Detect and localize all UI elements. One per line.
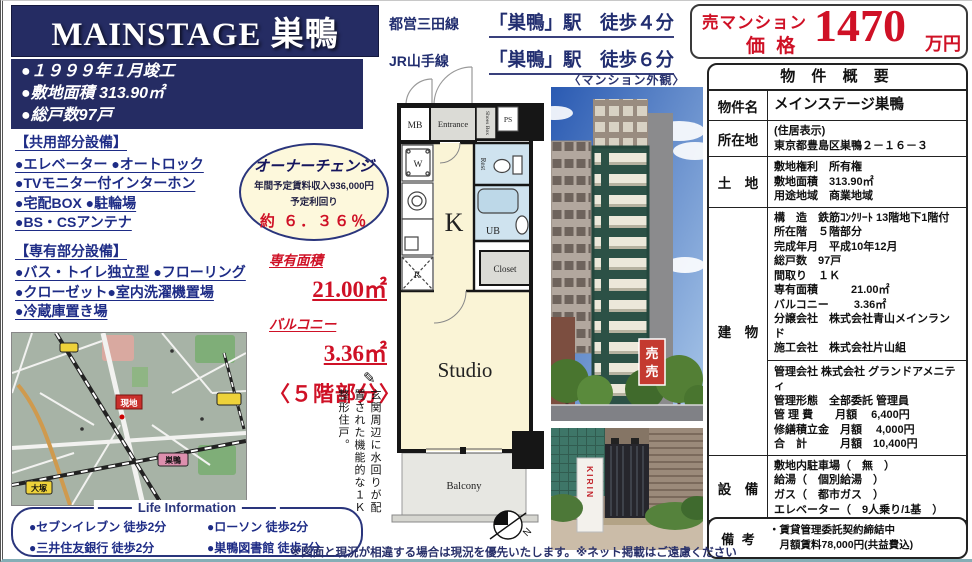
overview-line: 専有面積 21.00㎡ — [774, 283, 960, 298]
equipment-item: ●BS・CSアンテナ — [15, 213, 261, 233]
overview-row-label: 物件名 — [709, 91, 768, 120]
property-title-banner: MAINSTAGE 巣鴨 — [11, 5, 379, 57]
building-fact: ●１９９９年１月竣工 — [21, 61, 353, 83]
building-facts-box: ●１９９９年１月竣工●敷地面積 313.90㎡●総戸数97戸 — [11, 59, 363, 129]
price-box: 売マンション 価 格 1470 万円 — [690, 4, 968, 59]
overview-row-label: 土 地 — [709, 157, 768, 207]
overview-line: 用途地域 商業地域 — [774, 189, 960, 204]
price-unit: 万円 — [925, 30, 961, 56]
overview-row-content: (住居表示)東京都豊島区巣鴨２－１６－３ — [768, 121, 966, 156]
title-dash — [98, 507, 132, 509]
owner-change-yield-label: 予定利回り — [241, 194, 387, 208]
overview-row: 設 備敷地内駐車場（ 無 ）給湯（ 個別給湯 ）ガス（ 都市ガス ）エレベーター… — [709, 456, 966, 521]
mb-label: MB — [408, 121, 423, 131]
sale-sign-char: 売 — [645, 346, 658, 361]
private-equipment-title: 【専有部分設備】 — [15, 242, 261, 262]
owner-change-badge: オーナーチェンジ 年間予定賃料収入936,000円 予定利回り 約 ６．３６％ — [239, 143, 389, 241]
overview-row-content: 敷地権利 所有権敷地面積 313.90㎡用途地域 商業地域 — [768, 157, 966, 207]
remarks-line: ・賃貸管理委託契約締結中 — [769, 523, 913, 538]
ps-label: PS — [504, 115, 512, 124]
entrance-photo: KIRIN — [551, 428, 703, 550]
overview-row-content: 敷地内駐車場（ 無 ）給湯（ 個別給湯 ）ガス（ 都市ガス ）エレベーター（ 9… — [768, 456, 966, 520]
site-label: 現地 — [120, 398, 138, 408]
overview-line: 敷地内駐車場（ 無 ） — [774, 459, 960, 474]
shoes-box-label: Shoes Box — [484, 111, 490, 135]
private-equipment-list: ●バス・トイレ独立型 ●フローリング●クローゼット●室内洗濯機置場●冷蔵庫置き場 — [15, 263, 261, 322]
overview-line: 敷地面積 313.90㎡ — [774, 175, 960, 190]
studio-label: Studio — [438, 358, 493, 382]
overview-row-label: 所在地 — [709, 121, 768, 156]
equipment-item: ●冷蔵庫置き場 — [15, 302, 261, 322]
overview-line: 東京都豊島区巣鴨２－１６－３ — [774, 139, 960, 154]
life-info-item: ●三井住友銀行 徒歩2分 — [29, 539, 207, 556]
overview-line: 給湯（ 個別給湯 ） — [774, 473, 960, 488]
overview-line: エレベーター（ 9人乗り/1基 ） — [774, 503, 960, 518]
overview-row-content: 構 造 鉄筋ｺﾝｸﾘｰﾄ 13階地下1階付所在階 ５階部分完成年月 平成10年1… — [768, 208, 966, 455]
overview-row-label: 設 備 — [709, 456, 768, 520]
flyer-page: MAINSTAGE 巣鴨 ●１９９９年１月竣工●敷地面積 313.90㎡●総戸数… — [0, 0, 972, 562]
shared-equipment-title: 【共用部分設備】 — [15, 133, 261, 153]
overview-line: 構 造 鉄筋ｺﾝｸﾘｰﾄ 13階地下1階付 — [774, 211, 960, 226]
overview-line: 施工会社 株式会社片山組 — [774, 341, 960, 356]
balcony-area-label: バルコニー — [269, 313, 387, 333]
vending-brand-text: KIRIN — [585, 466, 595, 499]
life-info-item: ●ローソン 徒歩2分 — [207, 518, 355, 535]
north-label: N — [521, 526, 534, 539]
entry-door-arcs — [406, 67, 472, 105]
equipment-item: ●宅配BOX ●駐輪場 — [15, 194, 261, 214]
disclaimer-note: ※図面と現況が相違する場合は現況を優先いたします。※ネット掲載はご遠慮ください — [290, 544, 737, 560]
overview-line: 所在階 ５階部分 — [774, 225, 960, 240]
station-walk-info: 「巣鴨」駅 徒歩４分 — [489, 9, 674, 38]
life-info-item: ●セブンイレブン 徒歩2分 — [29, 518, 207, 535]
pencil-icon: ✎ — [363, 369, 376, 387]
entrance-step — [601, 518, 653, 525]
unit-bath-label: UB — [486, 226, 500, 237]
overview-line: 完成年月 平成10年12月 — [774, 240, 960, 255]
overview-row: 土 地敷地権利 所有権敷地面積 313.90㎡用途地域 商業地域 — [709, 157, 966, 208]
street — [551, 405, 703, 421]
equipment-item: ●TVモニター付インターホン — [15, 174, 261, 194]
kitchen-label: K — [445, 208, 464, 237]
balcony-area-value: 3.36㎡ — [269, 334, 387, 368]
balcony-label: Balcony — [447, 481, 483, 492]
owner-change-title: オーナーチェンジ — [241, 155, 387, 176]
owner-change-income: 年間予定賃料収入936,000円 — [241, 178, 387, 192]
sale-sign-char: 売 — [645, 364, 658, 379]
price-amount: 1470 — [814, 0, 906, 52]
equipment-item: ●バス・トイレ独立型 ●フローリング — [15, 263, 261, 283]
remarks-content: ・賃貸管理委託契約締結中 月額賃料78,000円(共益費込) — [769, 523, 913, 552]
station-otsuka-label: 大塚 — [31, 483, 47, 493]
life-information-title-wrap: Life Information — [94, 500, 280, 515]
remarks-box: 備 考 ・賃貸管理委託契約締結中 月額賃料78,000円(共益費込) — [707, 517, 968, 559]
toilet-label: Rest — [479, 158, 487, 171]
overview-line: 管理形態 全部委託 管理員 — [774, 394, 960, 409]
overview-rows: 物件名メインステージ巣鴨所在地(住居表示)東京都豊島区巣鴨２－１６－３土 地敷地… — [709, 91, 966, 545]
overview-line: 総戸数 97戸 — [774, 254, 960, 269]
closet-label: Closet — [493, 264, 517, 274]
equipment-lists: 【共用部分設備】 ●エレベーター ●オートロック●TVモニター付インターホン●宅… — [15, 133, 261, 322]
entrance-label: Entrance — [438, 119, 468, 129]
overview-row-label: 建 物 — [709, 208, 768, 455]
vertical-note: 玄関周辺に水回りが配置された機能的な１Ｋ整形住戸。 — [347, 389, 383, 521]
sale-sign: 売 売 — [639, 339, 665, 385]
equipment-item: ●クローゼット●室内洗濯機置場 — [15, 283, 261, 303]
overview-sub-divider — [768, 360, 966, 361]
overview-row-content: メインステージ巣鴨 — [768, 91, 966, 120]
overview-header: 物 件 概 要 — [709, 65, 966, 91]
exterior-photo: 売 売 — [551, 87, 703, 421]
overview-line: メインステージ巣鴨 — [774, 96, 960, 115]
price-label: 価 格 — [746, 31, 798, 58]
title-dash — [242, 507, 276, 509]
exterior-photo-caption: 〈マンション外観〉 — [551, 71, 703, 88]
lamp — [611, 438, 619, 444]
overview-line: 分譲会社 株式会社青山メインランド — [774, 312, 960, 341]
area-map: 大塚 巣鴨 現地 — [11, 332, 247, 506]
overview-line: バルコニー 3.36㎡ — [774, 298, 960, 313]
overview-line: ガス（ 都市ガス ） — [774, 488, 960, 503]
access-row: 都営三田線 「巣鴨」駅 徒歩４分 — [389, 9, 695, 38]
equipment-item: ●エレベーター ●オートロック — [15, 155, 261, 175]
overview-row: 建 物構 造 鉄筋ｺﾝｸﾘｰﾄ 13階地下1階付所在階 ５階部分完成年月 平成1… — [709, 208, 966, 456]
floorplan: MB Entrance Shoes Box PS W Rest K UB R C… — [390, 61, 546, 543]
property-title: MAINSTAGE 巣鴨 — [51, 7, 338, 55]
shared-equipment-list: ●エレベーター ●オートロック●TVモニター付インターホン●宅配BOX ●駐輪場… — [15, 155, 261, 233]
lamp — [631, 438, 639, 444]
overview-line: 修繕積立金 月額 4,000円 — [774, 423, 960, 438]
overview-line: 間取り １Ｋ — [774, 269, 960, 284]
washer-label: W — [414, 160, 423, 170]
sale-type-label: 売マンション — [702, 9, 807, 33]
station-sugamo-label: 巣鴨 — [164, 455, 181, 465]
overview-row: 所在地(住居表示)東京都豊島区巣鴨２－１６－３ — [709, 121, 966, 157]
overview-row: 物件名メインステージ巣鴨 — [709, 91, 966, 121]
overview-line: 管理会社 株式会社 グランドアメニティ — [774, 365, 960, 394]
exclusive-area-value: 21.00㎡ — [269, 270, 387, 304]
property-overview-table: 物 件 概 要 物件名メインステージ巣鴨所在地(住居表示)東京都豊島区巣鴨２－１… — [707, 63, 968, 547]
life-information-title: Life Information — [138, 500, 236, 515]
owner-change-yield-value: 約 ６．３６％ — [241, 210, 387, 231]
overview-line: 管 理 費 月額 6,400円 — [774, 408, 960, 423]
rail-line-name: 都営三田線 — [389, 14, 489, 34]
building-fact: ●敷地面積 313.90㎡ — [21, 83, 353, 105]
fridge-label: R — [414, 271, 421, 281]
building-fact: ●総戸数97戸 — [21, 105, 353, 127]
overview-line: (住居表示) — [774, 124, 960, 139]
exclusive-area-label: 専有面積 — [269, 249, 387, 269]
overview-line: 敷地権利 所有権 — [774, 160, 960, 175]
vending-machine: KIRIN — [577, 458, 603, 532]
remarks-line: 月額賃料78,000円(共益費込) — [769, 538, 913, 553]
overview-line: 合 計 月額 10,400円 — [774, 437, 960, 452]
